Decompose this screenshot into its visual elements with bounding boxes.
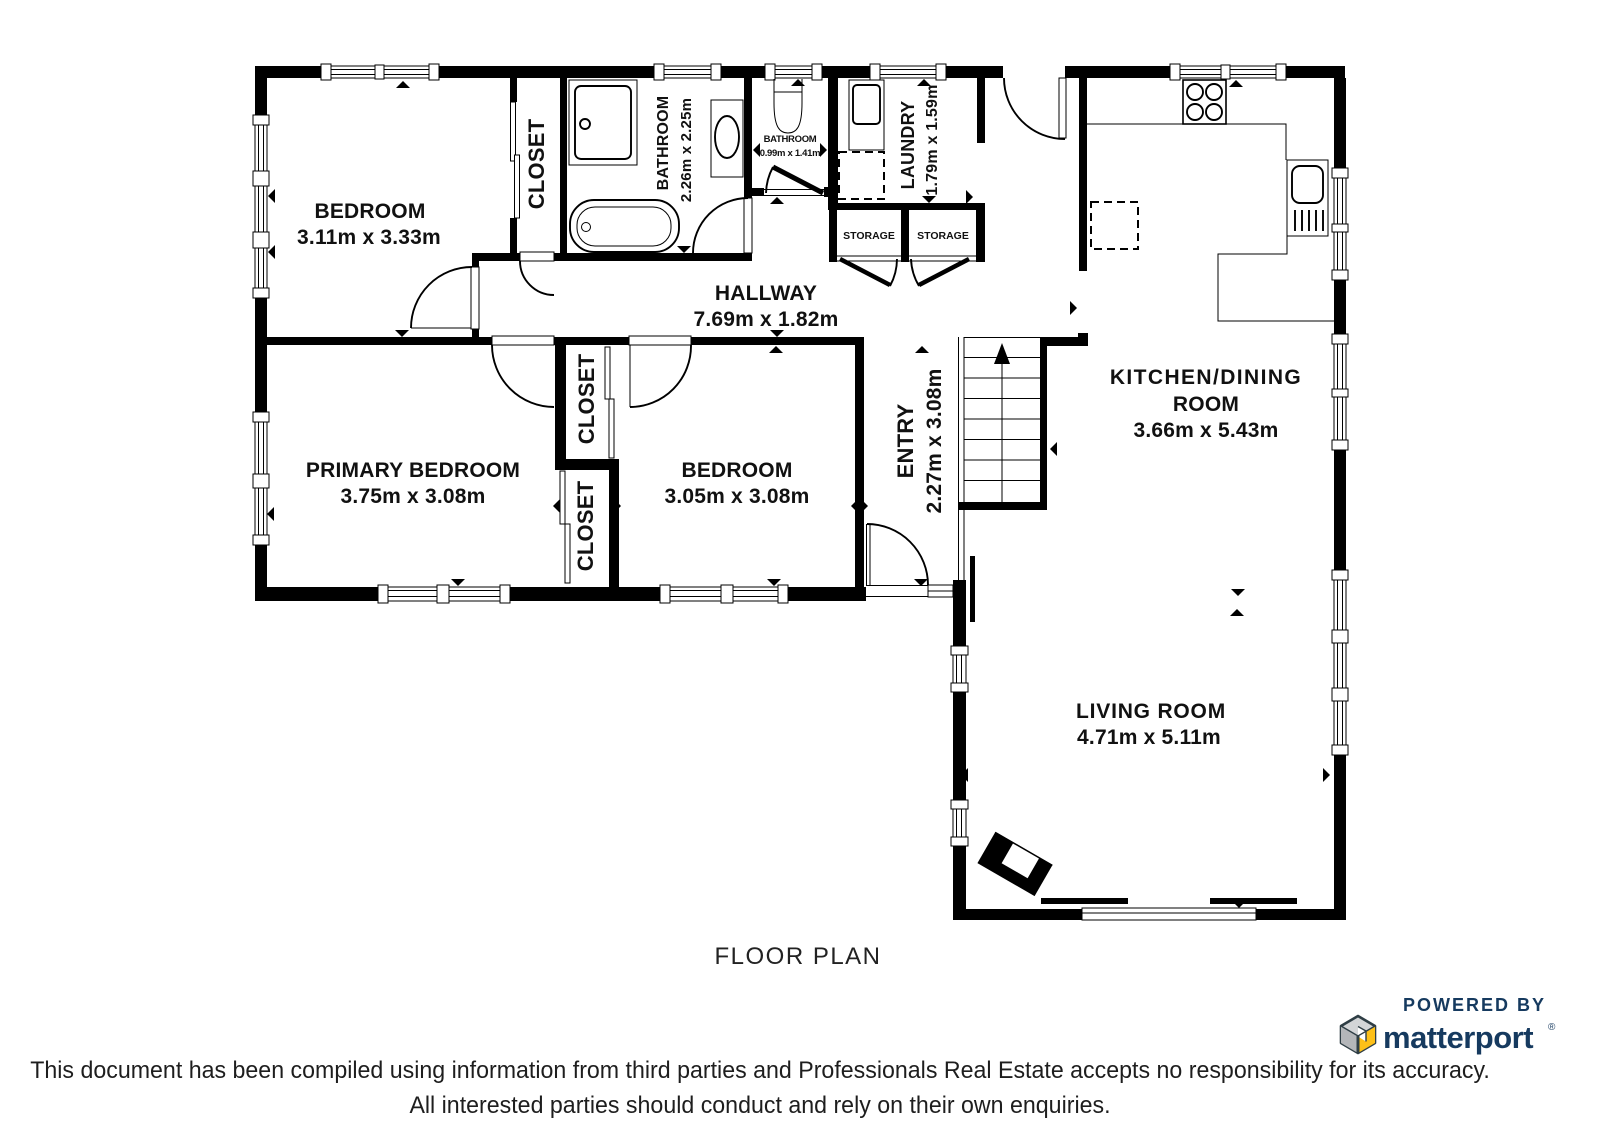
svg-text:4.71m x 5.11m: 4.71m x 5.11m bbox=[1077, 726, 1221, 749]
svg-text:PRIMARY BEDROOM: PRIMARY BEDROOM bbox=[306, 459, 520, 482]
svg-text:matterport: matterport bbox=[1383, 1020, 1533, 1055]
svg-text:BEDROOM: BEDROOM bbox=[681, 459, 792, 482]
svg-text:7.69m x 1.82m: 7.69m x 1.82m bbox=[693, 308, 838, 331]
svg-text:CLOSET: CLOSET bbox=[574, 353, 599, 444]
svg-text:BEDROOM: BEDROOM bbox=[314, 200, 425, 223]
svg-text:FLOOR PLAN: FLOOR PLAN bbox=[714, 943, 881, 970]
svg-text:3.05m x 3.08m: 3.05m x 3.08m bbox=[664, 485, 809, 508]
svg-text:®: ® bbox=[1548, 1022, 1556, 1033]
svg-text:2.27m x 3.08m: 2.27m x 3.08m bbox=[923, 368, 946, 513]
svg-text:STORAGE: STORAGE bbox=[917, 230, 969, 242]
svg-text:2.26m x 2.25m: 2.26m x 2.25m bbox=[678, 98, 695, 202]
svg-text:LIVING ROOM: LIVING ROOM bbox=[1076, 700, 1226, 723]
svg-text:ROOM: ROOM bbox=[1173, 393, 1239, 416]
svg-text:CLOSET: CLOSET bbox=[573, 480, 598, 571]
svg-text:LAUNDRY: LAUNDRY bbox=[898, 101, 918, 190]
svg-text:3.66m x 5.43m: 3.66m x 5.43m bbox=[1133, 419, 1278, 442]
svg-text:HALLWAY: HALLWAY bbox=[715, 282, 817, 305]
svg-text:1.79m x 1.59m: 1.79m x 1.59m bbox=[924, 84, 941, 195]
svg-text:POWERED BY: POWERED BY bbox=[1403, 995, 1546, 1015]
svg-text:0.99m x 1.41m: 0.99m x 1.41m bbox=[760, 148, 821, 159]
svg-text:3.11m x 3.33m: 3.11m x 3.33m bbox=[297, 226, 441, 249]
svg-text:CLOSET: CLOSET bbox=[524, 118, 549, 209]
svg-text:BATHROOM: BATHROOM bbox=[764, 134, 817, 145]
svg-text:ENTRY: ENTRY bbox=[893, 404, 918, 479]
svg-text:BATHROOM: BATHROOM bbox=[655, 96, 672, 191]
svg-text:KITCHEN/DINING: KITCHEN/DINING bbox=[1110, 366, 1302, 389]
svg-text:3.75m x 3.08m: 3.75m x 3.08m bbox=[340, 485, 485, 508]
svg-text:STORAGE: STORAGE bbox=[843, 230, 895, 242]
